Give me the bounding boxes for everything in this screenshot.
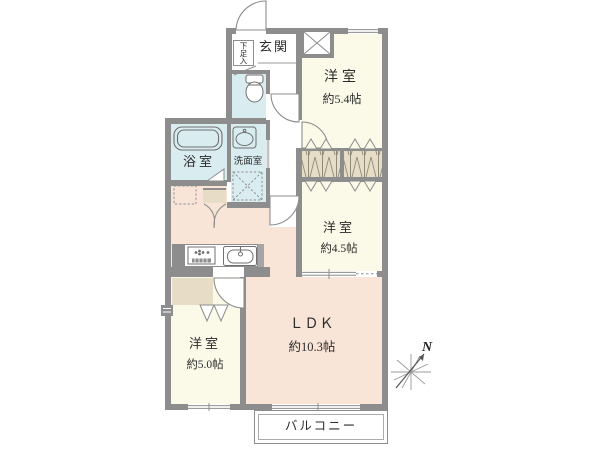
entrance-label: 玄関: [252, 40, 296, 54]
wall: [232, 70, 270, 74]
compass-north-label: N: [421, 340, 433, 355]
western-5-4-size: 約5.4帖: [312, 93, 372, 106]
room-toilet: [232, 74, 266, 120]
wall: [377, 271, 388, 277]
door-gap: [213, 267, 244, 277]
wall: [240, 277, 246, 404]
floorplan: バルコニー: [0, 0, 600, 450]
bathroom-label: 浴室: [177, 155, 221, 169]
ldk-size: 約10.3帖: [275, 341, 349, 355]
ldk-label: ＬＤＫ: [280, 317, 344, 332]
wall: [227, 202, 270, 208]
balcony: バルコニー: [254, 410, 388, 444]
wall: [266, 70, 270, 94]
western-4-5-label: 洋室: [309, 221, 369, 235]
closet-right: [344, 151, 382, 177]
compass-icon: N: [391, 340, 433, 390]
counter-end-cap: [258, 244, 264, 267]
door-gap: [236, 28, 266, 34]
counter-end-cap: [172, 244, 184, 267]
wall: [227, 124, 231, 182]
western-5-4-label: 洋室: [312, 70, 372, 85]
door-gap: [266, 94, 270, 120]
wall: [382, 28, 388, 410]
western-5-0-size: 約5.0帖: [175, 359, 235, 372]
wall: [296, 148, 302, 277]
wall: [165, 267, 213, 277]
closet-5-0: [172, 278, 213, 305]
wall: [165, 118, 270, 124]
washroom-label: 洗面室: [229, 157, 267, 167]
wall: [266, 120, 270, 140]
toilet-door-arc: [271, 94, 299, 122]
wall: [302, 177, 382, 182]
door-gap: [296, 120, 302, 148]
pipe-space-box: [300, 28, 334, 58]
room-bathroom: [171, 124, 227, 180]
room-ldk-hallside: [270, 227, 296, 277]
wall: [165, 404, 188, 410]
ldk-door-arc: [270, 196, 299, 225]
wall: [171, 180, 227, 186]
wall: [165, 118, 171, 410]
western-4-5-size: 約4.5帖: [309, 243, 369, 256]
kitchen-counter: [184, 244, 258, 267]
wall: [226, 28, 232, 124]
western-5-0-label: 洋室: [175, 337, 235, 351]
entrance-door-arc: [236, 1, 266, 30]
closet-left: [302, 151, 340, 177]
wall: [340, 151, 344, 177]
shoe-storage-label: 下足入: [235, 42, 252, 65]
window-bottom-left: [188, 403, 230, 411]
balcony-label: バルコニー: [285, 420, 357, 434]
balcony-inner-line: バルコニー: [258, 414, 384, 440]
wall: [244, 267, 270, 277]
kitchen-cabinet: [203, 188, 226, 203]
